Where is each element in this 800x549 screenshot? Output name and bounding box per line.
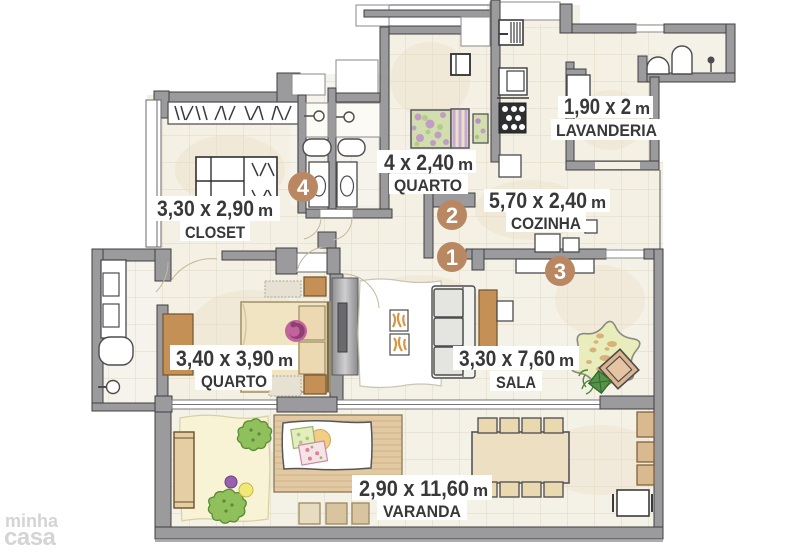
svg-text:1,90 x 2: 1,90 x 2 bbox=[564, 94, 631, 119]
svg-text:m: m bbox=[258, 201, 273, 220]
svg-text:COZINHA: COZINHA bbox=[511, 214, 581, 233]
svg-text:casa: casa bbox=[4, 524, 57, 549]
svg-text:m: m bbox=[473, 481, 488, 500]
svg-text:QUARTO: QUARTO bbox=[394, 176, 462, 195]
svg-text:2: 2 bbox=[446, 203, 458, 228]
svg-text:QUARTO: QUARTO bbox=[201, 372, 267, 391]
svg-text:m: m bbox=[559, 351, 574, 370]
svg-text:3,40 x 3,90: 3,40 x 3,90 bbox=[176, 346, 274, 371]
svg-text:3,30 x 7,60: 3,30 x 7,60 bbox=[459, 346, 555, 371]
svg-text:m: m bbox=[278, 351, 293, 370]
svg-text:1: 1 bbox=[446, 245, 458, 270]
svg-text:5,70 x 2,40: 5,70 x 2,40 bbox=[489, 188, 587, 213]
svg-text:4: 4 bbox=[297, 175, 310, 200]
svg-text:LAVANDERIA: LAVANDERIA bbox=[556, 121, 657, 140]
svg-text:3: 3 bbox=[554, 259, 566, 284]
svg-text:4 x 2,40: 4 x 2,40 bbox=[384, 150, 454, 175]
svg-text:3,30 x 2,90: 3,30 x 2,90 bbox=[157, 196, 254, 221]
svg-text:2,90 x 11,60: 2,90 x 11,60 bbox=[359, 476, 469, 501]
svg-text:m: m bbox=[458, 155, 473, 174]
svg-text:m: m bbox=[591, 193, 606, 212]
svg-text:VARANDA: VARANDA bbox=[383, 502, 461, 521]
svg-text:SALA: SALA bbox=[496, 373, 536, 392]
svg-text:CLOSET: CLOSET bbox=[185, 223, 246, 242]
svg-text:m: m bbox=[635, 99, 650, 118]
